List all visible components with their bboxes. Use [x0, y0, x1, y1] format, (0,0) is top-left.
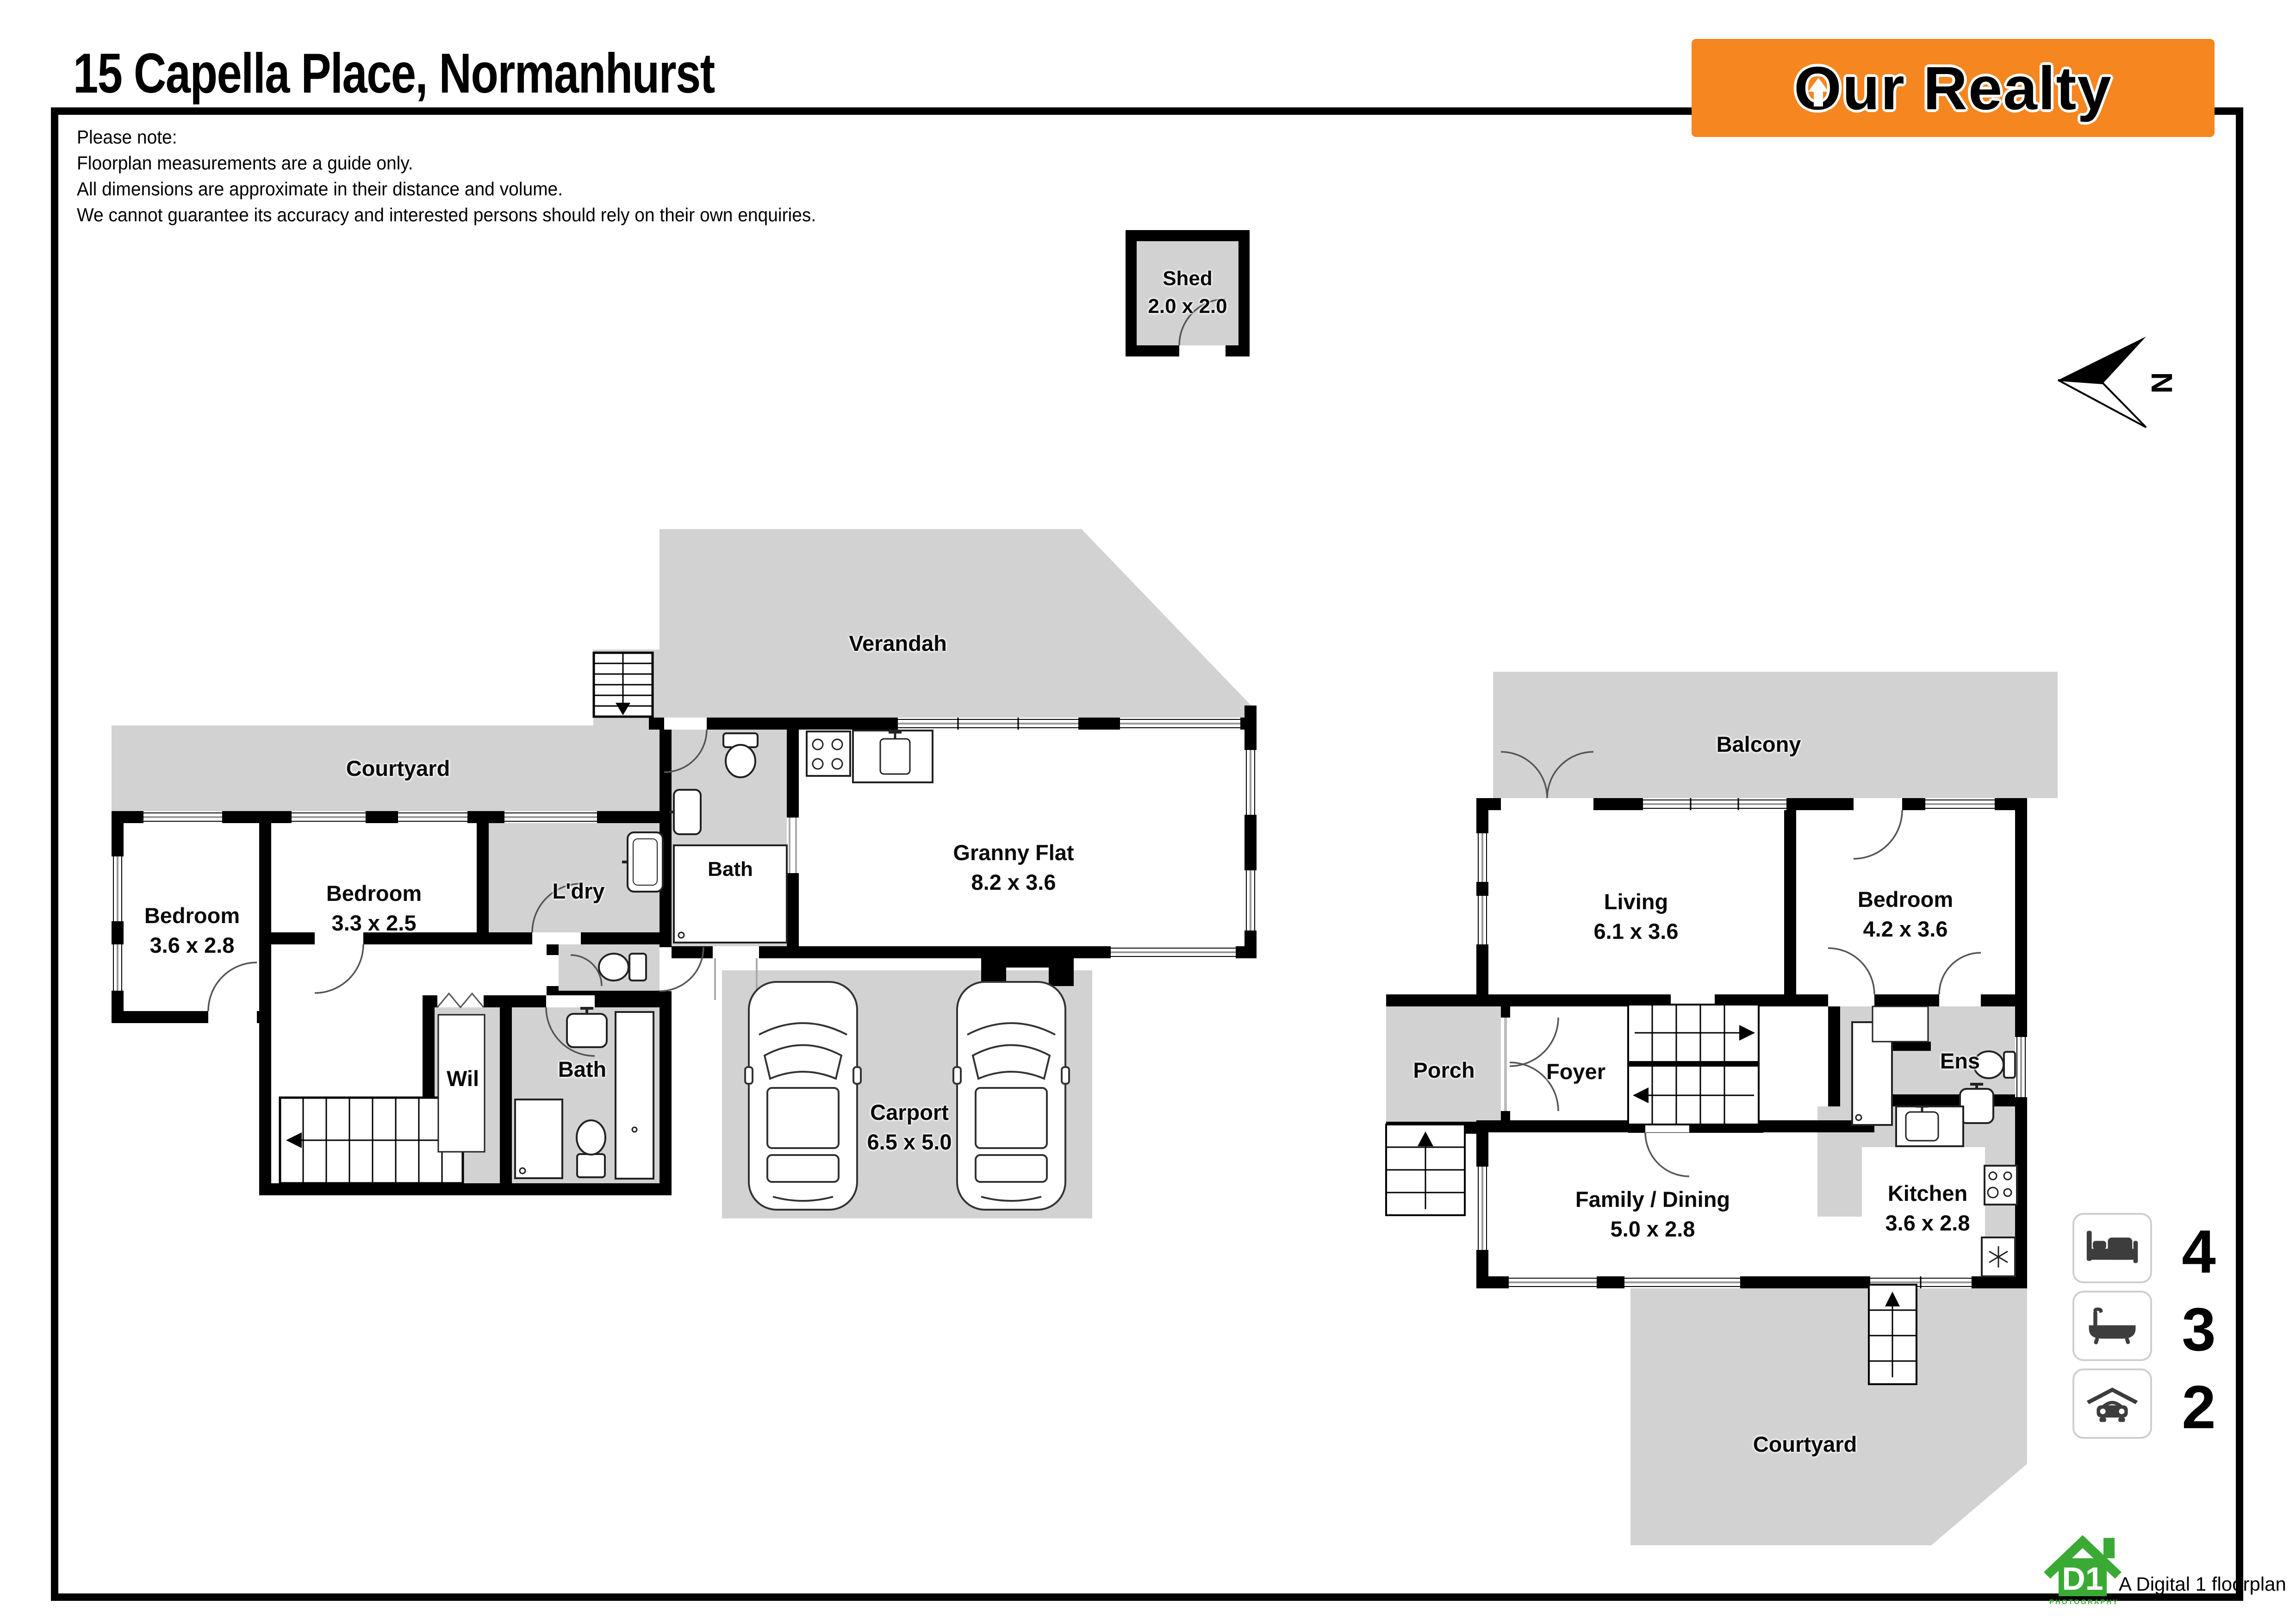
- room-label-ens: Ens: [1940, 1046, 1980, 1076]
- kitchen-sink-icon: [853, 731, 933, 782]
- sink-icon: [669, 790, 701, 834]
- toilet-icon: [1974, 1051, 2015, 1078]
- room-label-porch: Porch: [1413, 1056, 1475, 1085]
- legend-bedrooms-count: 4: [2169, 1217, 2229, 1287]
- stairs-courtyard: [1869, 1285, 1916, 1384]
- stairs-main: [1628, 1005, 1759, 1124]
- room-label-bedroom1: Bedroom3.6 x 2.8: [144, 901, 240, 960]
- room-label-courtyard-left: Courtyard: [346, 754, 450, 783]
- legend-car-spaces: [2072, 1368, 2152, 1439]
- room-label-laundry: L'dry: [552, 876, 604, 906]
- stairs-porch: [1386, 1124, 1465, 1215]
- stairs-verandah: [594, 653, 653, 717]
- toilet-icon: [599, 954, 646, 981]
- north-arrow-icon: [2058, 337, 2146, 427]
- svg-text:D1: D1: [2062, 1561, 2103, 1597]
- room-label-kitchen: Kitchen3.6 x 2.8: [1885, 1179, 1970, 1238]
- room-label-carport: Carport6.5 x 5.0: [867, 1098, 952, 1157]
- room-label-granny-flat: Granny Flat8.2 x 3.6: [953, 838, 1074, 897]
- stove-icon: [1985, 1166, 2017, 1205]
- room-label-bath: Bath: [558, 1055, 606, 1084]
- car-icon: [2084, 1384, 2140, 1423]
- toilet-icon: [723, 733, 758, 777]
- laundry-tub-icon: [622, 832, 663, 892]
- room-label-bedroom-right: Bedroom4.2 x 3.6: [1858, 885, 1953, 944]
- room-label-balcony: Balcony: [1717, 730, 1801, 759]
- room-label-living: Living6.1 x 3.6: [1594, 887, 1679, 946]
- d1-logo-subtext: PHOTOGRAPHY: [2049, 1598, 2119, 1606]
- room-label-wil: Wil: [447, 1064, 479, 1093]
- room-label-family-dining: Family / Dining5.0 x 2.8: [1575, 1185, 1730, 1244]
- room-label-foyer: Foyer: [1546, 1057, 1605, 1087]
- kitchen-sink-icon: [1896, 1106, 1963, 1146]
- d1-tagline: A Digital 1 floorplan: [2119, 1573, 2286, 1595]
- linen-cupboard: [616, 1012, 653, 1179]
- shower-icon: [515, 1099, 562, 1178]
- courtyard-right-area: [1630, 1288, 2027, 1545]
- legend-car-spaces-count: 2: [2169, 1372, 2229, 1442]
- room-label-granny-bath: Bath: [708, 856, 753, 883]
- floorplan-page: 15 Capella Place, Normanhurst Please not…: [0, 0, 2296, 1624]
- stove-icon: [807, 731, 850, 776]
- bath-icon: [2084, 1306, 2140, 1345]
- room-label-bedroom2: Bedroom3.3 x 2.5: [326, 879, 422, 938]
- car-top-view: [745, 982, 861, 1210]
- verandah-area: [660, 529, 1256, 730]
- legend-bathrooms: [2072, 1291, 2152, 1361]
- stairs-lower-left: [280, 1098, 463, 1183]
- room-label-verandah: Verandah: [849, 629, 947, 658]
- north-label: N: [2145, 372, 2179, 394]
- wardrobe: [1873, 1006, 1928, 1042]
- sink-icon: [1960, 1083, 1993, 1123]
- legend-bathrooms-count: 3: [2169, 1294, 2229, 1364]
- d1-photography-logo-icon: D1: [2044, 1535, 2122, 1597]
- fridge-icon: [1982, 1237, 2015, 1276]
- toilet-icon: [577, 1120, 605, 1177]
- room-label-shed: Shed2.0 x 2.0: [1148, 265, 1227, 320]
- sink-icon: [567, 1007, 607, 1047]
- room-label-courtyard-right: Courtyard: [1753, 1430, 1857, 1459]
- legend-bedrooms: [2072, 1213, 2152, 1283]
- car-top-view: [953, 982, 1069, 1210]
- floorplan-graphics: D1: [0, 0, 2296, 1624]
- bed-icon: [2084, 1229, 2140, 1268]
